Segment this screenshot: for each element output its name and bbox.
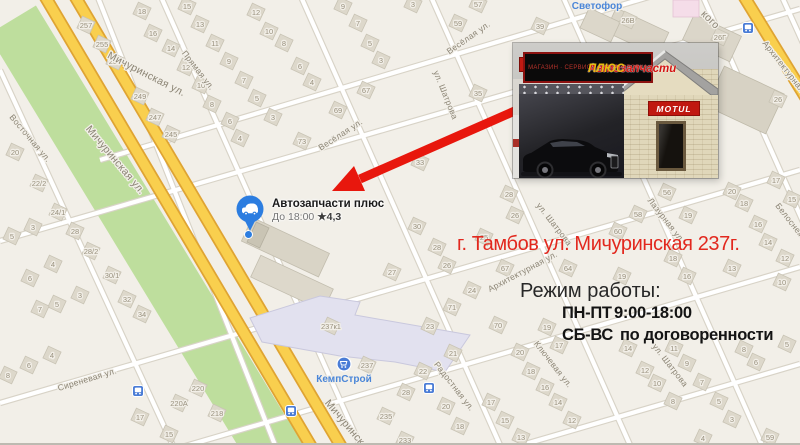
building-number: 16 [683, 272, 691, 281]
building-number: 17 [772, 176, 780, 185]
transit-stop-icon[interactable] [133, 386, 144, 397]
building-number: 218 [211, 409, 224, 418]
building-number: 18 [138, 7, 146, 16]
building-number: 16 [754, 220, 762, 229]
building-number: 8 [671, 397, 675, 406]
building-number: 23 [426, 322, 434, 331]
building-number: 13 [517, 433, 525, 442]
marker-title: Автозапчасти плюс [272, 198, 384, 211]
building-number: 18 [527, 367, 535, 376]
building-number: 10 [778, 278, 786, 287]
transit-stop-icon[interactable] [424, 383, 435, 394]
building-number: 7 [700, 378, 704, 387]
building-number: 245 [165, 130, 178, 139]
building-number: 10 [653, 379, 661, 388]
transit-stop-icon[interactable] [743, 23, 754, 34]
building-number: 73 [298, 137, 306, 146]
building-number: 17 [487, 398, 495, 407]
building-number: 58 [634, 210, 642, 219]
store-photo: MOTUL MOTUL АвтозапчастиПЛЮС МАГАЗИН · С… [513, 43, 718, 178]
building-number: 20 [516, 348, 524, 357]
building-number: 22/2 [32, 179, 47, 188]
building-number: 14 [167, 44, 175, 53]
schedule-hours-2: по договоренности [620, 326, 773, 345]
building-number: 24/1 [51, 208, 66, 217]
building-number: 6 [27, 361, 31, 370]
building-number: 67 [501, 264, 509, 273]
building-number: 5 [717, 397, 721, 406]
motul-sign-wall: MOTUL [648, 101, 700, 116]
building-number: 26Г [714, 33, 726, 42]
store-signboard: АвтозапчастиПЛЮС МАГАЗИН · СЕРВИС · АВТО… [523, 52, 653, 83]
building-number: 220 [192, 384, 205, 393]
building-number: 9 [685, 359, 689, 368]
building-number: 12 [252, 8, 260, 17]
building-number: 26В [621, 16, 634, 25]
building-number: 28 [433, 243, 441, 252]
building-number: 69 [334, 106, 342, 115]
building-number: 3 [730, 415, 734, 424]
building-number: 4 [238, 134, 242, 143]
building-number: 67 [362, 86, 370, 95]
building-number: 13 [728, 264, 736, 273]
building-number: 4 [51, 260, 55, 269]
building-number: 30/1 [105, 271, 120, 280]
building-number: 220А [170, 399, 188, 408]
building-number: 13 [196, 20, 204, 29]
building-number: 4 [50, 351, 54, 360]
building-number: 8 [282, 39, 286, 48]
building-number: 5 [785, 340, 789, 349]
store-marker-pin[interactable] [233, 194, 267, 234]
car-photo [519, 126, 624, 178]
building-number: 15 [788, 195, 796, 204]
schedule-days-1: ПН-ПТ [562, 304, 614, 323]
photo-window [656, 121, 686, 171]
building-number: 17 [136, 413, 144, 422]
schedule-title: Режим работы: [520, 280, 661, 303]
building-number: 59 [454, 19, 462, 28]
building-number: 6 [228, 117, 232, 126]
building-number: 19 [684, 211, 692, 220]
building-number: 22 [419, 367, 427, 376]
building-number: 6 [754, 358, 758, 367]
schedule-row-weekend: СБ-ВС по договоренности [562, 326, 773, 345]
building-number: 14 [554, 398, 562, 407]
building-number: 3 [78, 291, 82, 300]
marker-subtitle: До 18:00 ★4,3 [272, 212, 384, 224]
building-number: 24 [468, 286, 476, 295]
building-number: 57 [474, 0, 482, 9]
building-number: 28/2 [84, 247, 99, 256]
building-number: 26 [511, 211, 519, 220]
building-number: 5 [255, 94, 259, 103]
building-number: 5 [55, 300, 59, 309]
building-number: 12 [568, 416, 576, 425]
poi-label: Светофор [572, 0, 622, 12]
schedule-rows: ПН-ПТ 9:00-18:00 СБ-ВС по договоренности [562, 304, 773, 348]
building-number: 9 [227, 57, 231, 66]
building-number: 6 [28, 274, 32, 283]
building-number: 27 [388, 268, 396, 277]
building-number: 4 [701, 434, 705, 443]
building-number: 6 [298, 62, 302, 71]
building-number: 7 [242, 76, 246, 85]
building-number: 32 [123, 295, 131, 304]
building-number: 12 [641, 366, 649, 375]
building-number: 8 [6, 371, 10, 380]
building-number: 7 [356, 19, 360, 28]
marker-hours: До 18:00 [272, 211, 314, 223]
building-number: 247 [149, 113, 162, 122]
building-number: 257 [80, 21, 93, 30]
schedule-days-2: СБ-ВС [562, 326, 614, 345]
building-number: 15 [183, 2, 191, 11]
building-number: 16 [541, 383, 549, 392]
building-number: 9 [341, 2, 345, 11]
building-number: 14 [764, 238, 772, 247]
building-number: 4 [310, 78, 314, 87]
building-number: 5 [368, 39, 372, 48]
building-number: 5 [10, 232, 14, 241]
building-number: 35 [474, 89, 482, 98]
building-number: 3 [271, 113, 275, 122]
building-number: 18 [740, 199, 748, 208]
building-number: 249 [134, 92, 147, 101]
map-screenshot: 2572552532492472451816141210864151311975… [0, 0, 800, 445]
marker-label[interactable]: Автозапчасти плюс До 18:00 ★4,3 [272, 198, 384, 223]
poi-Светофор[interactable]: Светофор [572, 0, 622, 12]
building-number: 235 [380, 412, 393, 421]
building-number: 30 [413, 222, 421, 231]
poi-label: КемпСтрой [316, 374, 371, 385]
building-number: 8 [210, 100, 214, 109]
building-number: 3 [411, 0, 415, 9]
building-number: 20 [728, 187, 736, 196]
building-number: 255 [96, 40, 109, 49]
building-number: 10 [265, 27, 273, 36]
marker-rating: ★4,3 [317, 211, 341, 223]
building-number: 16 [149, 29, 157, 38]
building-number: 20 [442, 402, 450, 411]
building-number: 21 [449, 349, 457, 358]
building-number: 28 [505, 190, 513, 199]
transit-stop-icon[interactable] [286, 406, 297, 417]
building-number: 15 [165, 430, 173, 439]
signboard-accent: ПЛЮС [588, 64, 624, 76]
building-number: 7 [38, 305, 42, 314]
photo-banner [519, 84, 624, 178]
building-number: 26 [443, 261, 451, 270]
building-number: 237 [361, 361, 374, 370]
building-number: 18 [456, 422, 464, 431]
building-number: 12 [781, 254, 789, 263]
building-number: 19 [543, 323, 551, 332]
building-number: 70 [494, 321, 502, 330]
building-number: 64 [564, 264, 572, 273]
building-number: 34 [138, 310, 146, 319]
building-number: 15 [501, 416, 509, 425]
building-number: 11 [211, 39, 219, 48]
address-text: г. Тамбов ул. Мичуринская 237г. [457, 233, 739, 256]
building-number: 237к1 [321, 322, 341, 331]
building-number: 33 [416, 158, 424, 167]
building-number: 71 [448, 303, 456, 312]
building-number: 59 [766, 433, 774, 442]
building-number: 28 [71, 227, 79, 236]
banner-logo-strip [519, 84, 624, 94]
building-number: 56 [663, 188, 671, 197]
building-number: 20 [11, 148, 19, 157]
building-number: 26 [774, 95, 782, 104]
building-number: 3 [379, 56, 383, 65]
building-number: 28 [402, 388, 410, 397]
schedule-hours-1: 9:00-18:00 [614, 304, 692, 323]
building-number: 39 [536, 22, 544, 31]
schedule-row-weekdays: ПН-ПТ 9:00-18:00 [562, 304, 773, 323]
building-number: 3 [31, 223, 35, 232]
